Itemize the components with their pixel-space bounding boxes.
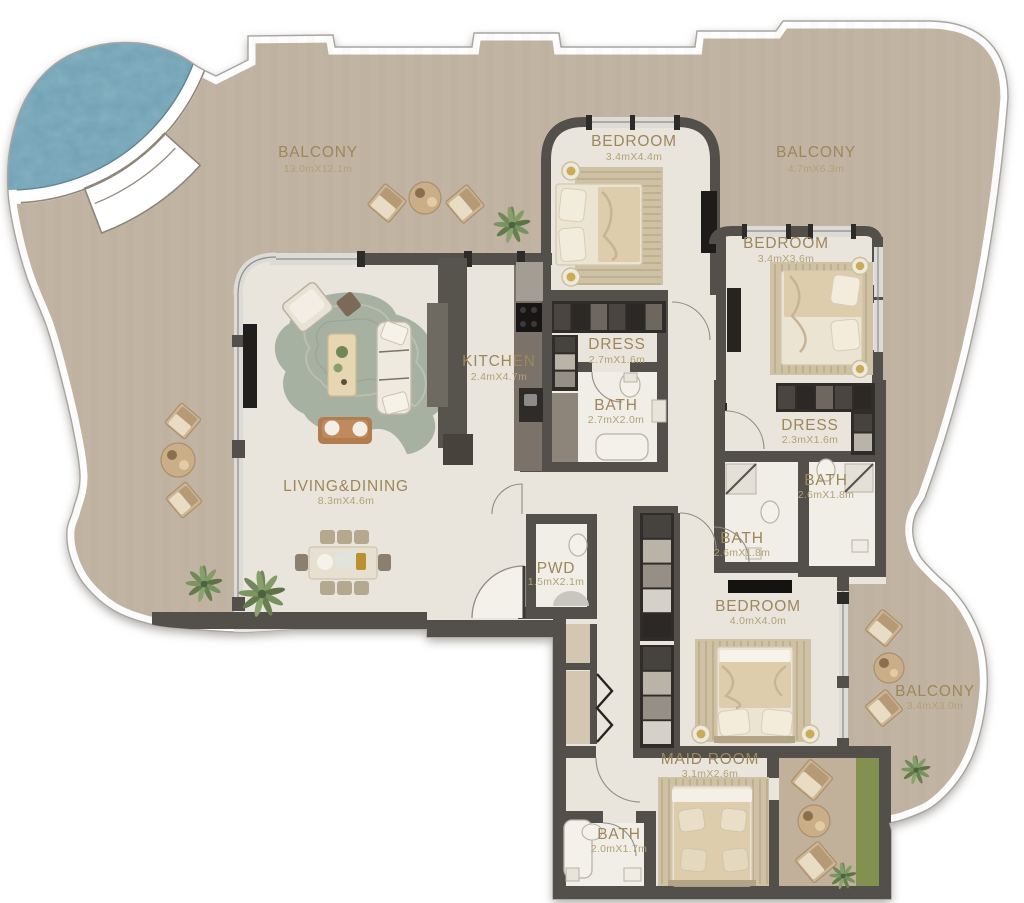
svg-text:MAID ROOM: MAID ROOM (661, 751, 759, 768)
svg-text:13.0mX12.1m: 13.0mX12.1m (284, 163, 353, 175)
svg-text:2.6mX1.8m: 2.6mX1.8m (714, 547, 770, 559)
svg-text:KITCHEN: KITCHEN (462, 353, 536, 370)
svg-text:BEDROOM: BEDROOM (715, 598, 801, 615)
svg-text:BALCONY: BALCONY (776, 144, 856, 161)
svg-text:LIVING&DINING: LIVING&DINING (283, 478, 409, 495)
svg-text:3.4mX4.4m: 3.4mX4.4m (606, 151, 662, 163)
svg-text:BALCONY: BALCONY (278, 144, 358, 161)
svg-text:BALCONY: BALCONY (895, 683, 975, 700)
svg-text:4.7mX6.3m: 4.7mX6.3m (788, 163, 844, 175)
svg-text:PWD: PWD (537, 560, 576, 577)
svg-text:BATH: BATH (597, 826, 640, 843)
svg-text:8.3mX4.6m: 8.3mX4.6m (318, 495, 374, 507)
svg-text:2.7mX1.6m: 2.7mX1.6m (589, 354, 645, 366)
svg-text:4.0mX4.0m: 4.0mX4.0m (730, 615, 786, 627)
svg-text:2.0mX1.7m: 2.0mX1.7m (591, 843, 647, 855)
svg-text:2.7mX2.0m: 2.7mX2.0m (588, 414, 644, 426)
svg-text:3.4mX3.0m: 3.4mX3.0m (907, 700, 963, 712)
svg-text:DRESS: DRESS (781, 417, 838, 434)
svg-text:2.3mX1.6m: 2.3mX1.6m (782, 434, 838, 446)
svg-text:BATH: BATH (804, 472, 847, 489)
svg-text:BEDROOM: BEDROOM (591, 133, 677, 150)
svg-text:BEDROOM: BEDROOM (743, 235, 829, 252)
svg-text:3.1mX2.6m: 3.1mX2.6m (682, 768, 738, 780)
svg-text:BATH: BATH (720, 530, 763, 547)
svg-text:1.5mX2.1m: 1.5mX2.1m (528, 576, 584, 588)
svg-text:DRESS: DRESS (588, 336, 645, 353)
svg-text:2.6mX1.8m: 2.6mX1.8m (798, 489, 854, 501)
svg-text:3.4mX3.6m: 3.4mX3.6m (758, 253, 814, 265)
svg-text:2.4mX4.7m: 2.4mX4.7m (471, 371, 527, 383)
svg-text:BATH: BATH (594, 397, 637, 414)
